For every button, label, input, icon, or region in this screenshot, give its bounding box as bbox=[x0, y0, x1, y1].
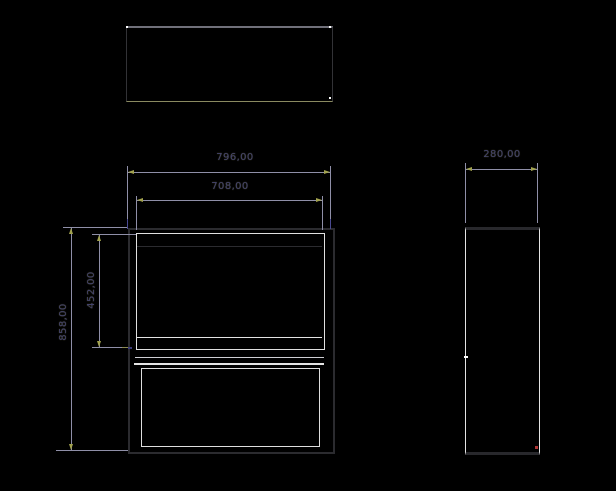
dim-total-height-ext-bottom bbox=[56, 450, 128, 451]
dim-depth-arrow-left bbox=[466, 167, 472, 171]
dim-outer-width-arrow-right bbox=[324, 170, 330, 174]
front-shelf-line-lower bbox=[134, 363, 324, 365]
side-view-red-corner-marker bbox=[535, 446, 538, 449]
top-view-corner-marker bbox=[126, 26, 128, 28]
dim-inner-width-line bbox=[136, 200, 323, 201]
dim-inner-width-ext-right bbox=[322, 196, 323, 230]
dim-opening-height-ext-bottom bbox=[92, 347, 122, 348]
dim-opening-height-arrow-top bbox=[97, 235, 101, 241]
dim-depth-arrow-right bbox=[531, 167, 537, 171]
dim-outer-width-ext-right-tip bbox=[330, 219, 331, 229]
top-view bbox=[126, 26, 333, 102]
dim-opening-height-label: 452,00 bbox=[86, 259, 98, 321]
dim-opening-height-ext-bottom-tip bbox=[122, 347, 128, 348]
dim-depth-label: 280,00 bbox=[471, 149, 533, 161]
dim-inner-width-label: 708,00 bbox=[200, 181, 260, 193]
dim-inner-width-arrow-right bbox=[316, 198, 322, 202]
dim-opening-height-arrow-bottom bbox=[97, 341, 101, 347]
dim-total-height-arrow-top bbox=[69, 228, 73, 234]
side-view-edge-tick bbox=[464, 356, 468, 358]
top-view-corner-marker bbox=[329, 97, 331, 99]
dim-total-height-line bbox=[71, 227, 72, 451]
dim-inner-width-arrow-left bbox=[137, 198, 143, 202]
dim-depth-ext-right bbox=[537, 163, 538, 223]
dim-outer-width-line bbox=[127, 172, 331, 173]
front-shelf-line-upper bbox=[135, 357, 324, 358]
front-opening-inner-line bbox=[137, 246, 322, 247]
dim-total-height-arrow-bottom bbox=[69, 444, 73, 450]
top-view-corner-marker bbox=[329, 26, 331, 28]
dim-depth-line bbox=[465, 169, 538, 170]
front-opening bbox=[136, 233, 325, 350]
dim-outer-width-ext-left-tip bbox=[127, 219, 128, 229]
dim-outer-width-label: 796,00 bbox=[205, 152, 265, 164]
dim-outer-width-ext-right bbox=[330, 166, 331, 219]
dim-opening-height-line bbox=[99, 234, 100, 348]
drawing-canvas[interactable]: 796,00 708,00 280,00 858,00 452,00 bbox=[0, 0, 616, 491]
dim-outer-width-arrow-left bbox=[128, 170, 134, 174]
front-extension-tip bbox=[128, 347, 132, 349]
dim-depth-ext-left bbox=[465, 163, 466, 223]
side-view bbox=[465, 227, 540, 455]
front-opening-sill-line bbox=[137, 337, 322, 338]
front-base-panel bbox=[141, 368, 320, 447]
dim-total-height-label: 858,00 bbox=[58, 291, 70, 353]
